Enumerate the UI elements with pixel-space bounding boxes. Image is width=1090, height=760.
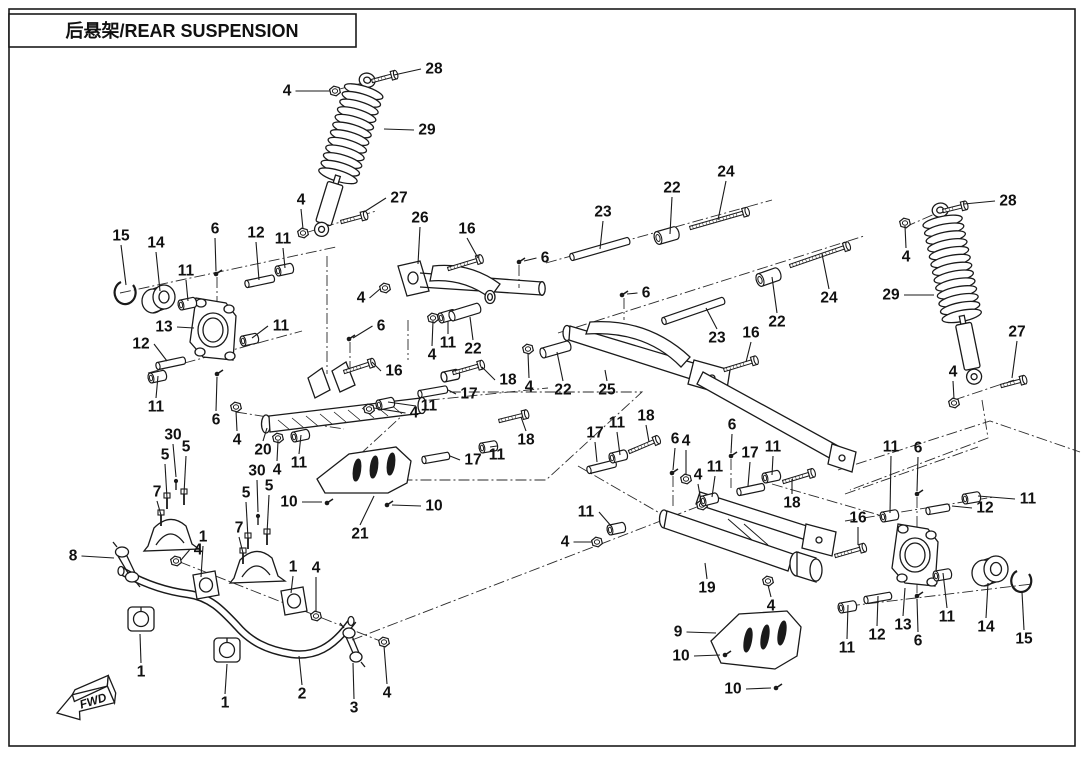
callout-13: 13	[155, 319, 173, 336]
callout-17: 17	[464, 452, 481, 469]
callout-6: 6	[212, 412, 221, 429]
callout-16: 16	[458, 221, 476, 238]
callout-1: 1	[221, 695, 230, 712]
callout-1: 1	[289, 559, 298, 576]
callout-27: 27	[1008, 324, 1025, 341]
callout-6: 6	[728, 417, 737, 434]
callout-5: 5	[182, 439, 191, 456]
callout-11: 11	[489, 447, 506, 464]
callout-25: 25	[598, 382, 616, 399]
callout-10: 10	[724, 681, 741, 698]
callout-12: 12	[976, 500, 993, 517]
callout-11: 11	[578, 504, 595, 521]
callout-18: 18	[637, 408, 655, 425]
callout-11: 11	[148, 399, 165, 416]
bar-bushing	[128, 607, 154, 631]
left-knuckle	[190, 298, 236, 360]
callout-4: 4	[283, 83, 292, 100]
callout-17: 17	[460, 386, 477, 403]
callout-4: 4	[357, 290, 366, 307]
callout-15: 15	[1015, 631, 1033, 648]
callout-4: 4	[194, 542, 203, 559]
callout-22: 22	[663, 180, 680, 197]
callout-11: 11	[275, 231, 292, 248]
callout-4: 4	[273, 462, 282, 479]
callout-20: 20	[254, 442, 271, 459]
callout-11: 11	[765, 439, 782, 456]
callout-11: 11	[273, 318, 290, 335]
callout-1: 1	[137, 664, 146, 681]
callout-11: 11	[291, 455, 308, 472]
callout-4: 4	[312, 560, 321, 577]
callout-22: 22	[768, 314, 785, 331]
callout-22: 22	[554, 382, 571, 399]
callout-11: 11	[839, 640, 856, 657]
callout-17: 17	[741, 445, 758, 462]
callout-11: 11	[707, 459, 724, 476]
callout-18: 18	[783, 495, 801, 512]
callout-6: 6	[541, 250, 550, 267]
callout-4: 4	[410, 405, 419, 422]
callout-4: 4	[428, 347, 437, 364]
callout-29: 29	[418, 122, 436, 139]
callout-11: 11	[609, 415, 626, 432]
callout-4: 4	[233, 432, 242, 449]
callout-17: 17	[586, 425, 603, 442]
callout-7: 7	[235, 520, 244, 537]
callout-18: 18	[499, 372, 517, 389]
callout-29: 29	[882, 287, 900, 304]
callout-2: 2	[298, 686, 307, 703]
callout-11: 11	[421, 398, 438, 415]
callout-6: 6	[377, 318, 386, 335]
callout-16: 16	[849, 510, 867, 527]
callout-8: 8	[69, 548, 78, 565]
callout-11: 11	[1020, 491, 1037, 508]
callout-4: 4	[682, 433, 691, 450]
bar-clamp	[281, 587, 307, 615]
callout-5: 5	[265, 478, 274, 495]
callout-11: 11	[178, 263, 195, 280]
right-knuckle	[892, 524, 938, 586]
bar-clamp	[193, 571, 219, 599]
callout-4: 4	[694, 467, 703, 484]
callout-21: 21	[351, 526, 369, 543]
callout-10: 10	[672, 648, 689, 665]
callout-12: 12	[132, 336, 149, 353]
callout-4: 4	[525, 379, 534, 396]
parts-diagram-canvas: 后悬架/REAR SUSPENSION	[0, 0, 1090, 760]
callout-14: 14	[977, 619, 995, 636]
callout-11: 11	[440, 335, 457, 352]
callout-4: 4	[902, 249, 911, 266]
callout-4: 4	[383, 685, 392, 702]
callout-11: 11	[939, 609, 956, 626]
bar-bushing	[214, 638, 240, 662]
callout-10: 10	[425, 498, 442, 515]
callout-5: 5	[242, 485, 251, 502]
callout-12: 12	[868, 627, 885, 644]
callout-7: 7	[153, 484, 162, 501]
callout-4: 4	[561, 534, 570, 551]
callout-4: 4	[297, 192, 306, 209]
callout-30: 30	[164, 427, 181, 444]
callout-9: 9	[674, 624, 683, 641]
callout-16: 16	[385, 363, 403, 380]
diagram-title: 后悬架/REAR SUSPENSION	[65, 20, 298, 41]
callout-26: 26	[411, 210, 429, 227]
callout-6: 6	[642, 285, 651, 302]
callout-13: 13	[894, 617, 912, 634]
callout-24: 24	[820, 290, 838, 307]
callout-23: 23	[594, 204, 612, 221]
callout-30: 30	[248, 463, 265, 480]
callout-14: 14	[147, 235, 165, 252]
callout-27: 27	[390, 190, 407, 207]
callout-11: 11	[883, 439, 900, 456]
callout-4: 4	[949, 364, 958, 381]
callout-5: 5	[161, 447, 170, 464]
callout-6: 6	[211, 221, 220, 238]
callout-10: 10	[280, 494, 297, 511]
callout-6: 6	[914, 440, 923, 457]
callout-16: 16	[742, 325, 760, 342]
callout-15: 15	[112, 228, 130, 245]
callout-24: 24	[717, 164, 735, 181]
callout-19: 19	[698, 580, 716, 597]
callout-22: 22	[464, 341, 481, 358]
callout-6: 6	[671, 431, 680, 448]
callout-4: 4	[767, 598, 776, 615]
callout-23: 23	[708, 330, 726, 347]
callout-3: 3	[350, 700, 359, 717]
callout-12: 12	[247, 225, 264, 242]
callout-28: 28	[999, 193, 1017, 210]
callout-18: 18	[517, 432, 535, 449]
callout-28: 28	[425, 61, 443, 78]
callout-6: 6	[914, 633, 923, 650]
